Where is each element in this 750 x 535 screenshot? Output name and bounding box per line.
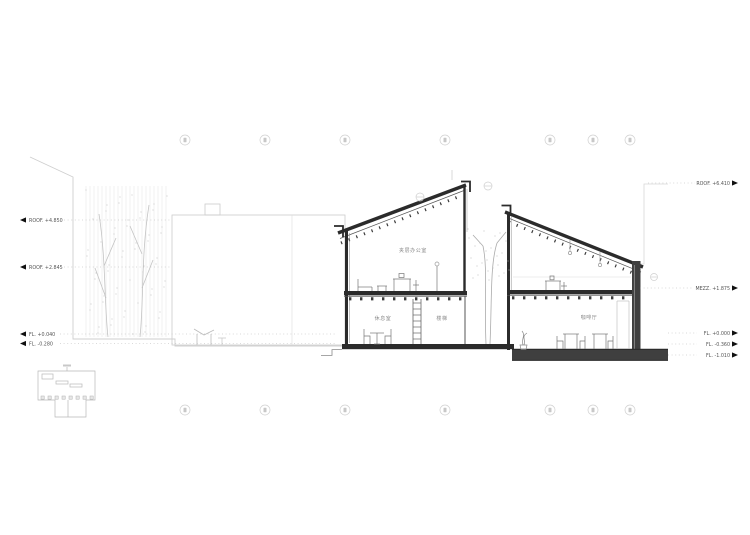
stair-ladder: [413, 299, 421, 344]
background-room: [172, 204, 345, 345]
foliage-dot: [474, 245, 475, 246]
right-roof: [505, 212, 643, 267]
level-marker: MEZZ. +1.875: [640, 285, 738, 291]
foliage-dot: [123, 316, 124, 317]
section-cut: [321, 170, 668, 360]
right-roof-rafters: [509, 222, 639, 276]
section-drawing: 夹层办公室 休息室 楼梯 咖啡厅 ROOF. +4.850 ROOF. +2.8…: [0, 0, 750, 535]
foliage-dot: [108, 264, 109, 265]
foliage-dot: [507, 260, 508, 261]
level-marker: FL. -1.010: [668, 352, 738, 358]
foliage-dot: [496, 255, 497, 256]
foliage-dot: [487, 270, 488, 271]
level-label: ROOF. +4.850: [29, 218, 63, 224]
section-drawing-sheet: 夹层办公室 休息室 楼梯 咖啡厅 ROOF. +4.850 ROOF. +2.8…: [0, 0, 750, 535]
plant-icon: [520, 331, 527, 349]
foliage-dot: [106, 204, 107, 205]
grid-bubble-mark: [592, 408, 595, 413]
key-plan-column: [90, 396, 93, 399]
foliage-dot: [468, 237, 469, 238]
left-roof-rafters: [341, 195, 463, 243]
grid-bubble-icon: [260, 135, 270, 145]
ground-slab-left: [342, 344, 514, 349]
foliage-dot: [467, 228, 468, 229]
foliage-dot: [100, 241, 101, 242]
foliage-dot: [498, 275, 499, 276]
foliage-dot: [151, 288, 152, 289]
key-plan-column: [41, 396, 44, 399]
level-marker: FL. +0.040: [20, 331, 336, 337]
mezz-right-furniture: [545, 276, 567, 290]
foliage-dot: [155, 263, 156, 264]
grid-bubbles: [180, 135, 635, 415]
foliage-dot: [481, 262, 482, 263]
grid-bubble-mark: [592, 138, 595, 143]
foliage-dot: [470, 257, 471, 258]
level-label: FL. +0.000: [704, 331, 730, 337]
level-markers-left: ROOF. +4.850 ROOF. +2.845 FL. +0.040 FL.…: [20, 217, 336, 347]
foliage-dot: [118, 202, 119, 203]
key-plan-column: [62, 396, 65, 399]
foliage-dot: [483, 230, 484, 231]
foliage-dot: [160, 232, 161, 233]
foliage-dot: [485, 250, 486, 251]
foliage-dot: [102, 301, 103, 302]
foliage-dot: [129, 279, 130, 280]
detail-callout-icon: [416, 193, 424, 201]
grid-bubble-mark: [264, 138, 267, 143]
key-plan-column: [76, 396, 79, 399]
foliage-dot: [124, 310, 125, 311]
foliage-dot: [153, 203, 154, 204]
foliage-dot: [119, 196, 120, 197]
foliage-dot: [94, 278, 95, 279]
foliage-dot: [144, 331, 145, 332]
foliage-dot: [472, 277, 473, 278]
site-boundary-line: [30, 157, 342, 346]
room-label-lounge: 休息室: [375, 315, 392, 322]
grid-bubble-icon: [625, 135, 635, 145]
grid-bubble-icon: [180, 405, 190, 415]
foliage-dot: [490, 247, 491, 248]
key-plan-columns: [41, 396, 93, 399]
door-frame: [617, 301, 629, 349]
foliage-dot: [85, 189, 86, 190]
level-marker: ROOF. +2.845: [20, 264, 170, 270]
room-label-cafe: 咖啡厅: [581, 314, 598, 321]
grid-bubble-mark: [344, 408, 347, 413]
neighbor-building-outline: [634, 184, 668, 264]
foliage-dot: [159, 311, 160, 312]
right-wall: [632, 261, 641, 352]
level-label: ROOF. +2.845: [29, 265, 63, 271]
key-plan-title-mark: [63, 365, 71, 367]
foliage-dot: [113, 233, 114, 234]
level-label: ROOF. +6.410: [696, 181, 730, 187]
foliage-dot: [145, 325, 146, 326]
foliage-dot: [107, 270, 108, 271]
grid-bubble-icon: [180, 135, 190, 145]
room-label-stair: 楼梯: [436, 315, 447, 322]
level-label: FL. -0.280: [29, 341, 53, 347]
level-label: FL. -0.360: [706, 342, 730, 348]
foliage-dot: [116, 287, 117, 288]
grid-bubble-icon: [545, 405, 555, 415]
ground-slab-right: [512, 349, 668, 360]
foliage-dot: [497, 264, 498, 265]
monitor-icon: [399, 274, 404, 278]
grid-bubble-icon: [588, 135, 598, 145]
room-label-mezz-office: 夹层办公室: [399, 247, 427, 254]
entry-steps: [321, 350, 342, 356]
grid-bubble-mark: [344, 138, 347, 143]
monitor-icon: [550, 276, 554, 280]
grid-bubble-icon: [625, 405, 635, 415]
foliage-dot: [503, 272, 504, 273]
lounge-furniture: [364, 329, 391, 344]
foliage-dot: [158, 317, 159, 318]
foliage-dot: [87, 249, 88, 250]
detail-callout-icon: [651, 274, 658, 281]
foliage-dot: [488, 279, 489, 280]
left-roof: [338, 185, 466, 233]
foliage-dot: [150, 294, 151, 295]
foliage-dot: [148, 234, 149, 235]
foliage-dot: [115, 293, 116, 294]
key-plan-column: [48, 396, 51, 399]
chimney: [205, 204, 220, 215]
foliage-dot: [126, 225, 127, 226]
grid-bubble-icon: [440, 405, 450, 415]
grid-bubble-mark: [184, 138, 187, 143]
key-plan: [38, 365, 95, 418]
grid-bubble-icon: [260, 405, 270, 415]
grid-bubble-mark: [629, 408, 632, 413]
grid-bubble-icon: [545, 135, 555, 145]
mezz-slab-right: [507, 290, 635, 294]
foliage-dot: [152, 209, 153, 210]
mezz-office-furniture: [358, 262, 439, 291]
foliage-dot: [137, 302, 138, 303]
foliage-dot: [139, 217, 140, 218]
foliage-dot: [140, 211, 141, 212]
level-marker: FL. -0.360: [668, 341, 738, 347]
level-label: FL. +0.040: [29, 332, 55, 338]
foliage-dot: [166, 195, 167, 196]
grid-bubble-icon: [340, 405, 350, 415]
lounge-chair: [194, 329, 214, 345]
mezz-slab-left: [344, 291, 467, 295]
foliage-dot: [90, 303, 91, 304]
foliage-dot: [97, 332, 98, 333]
grid-bubble-mark: [549, 138, 552, 143]
background-context: [30, 157, 668, 346]
level-markers-right: ROOF. +6.410 MEZZ. +1.875 FL. +0.000 FL.…: [640, 180, 738, 358]
key-plan-column: [69, 396, 72, 399]
foliage-dot: [476, 265, 477, 266]
grid-bubble-mark: [629, 138, 632, 143]
foliage-dot: [147, 240, 148, 241]
grid-bubble-mark: [549, 408, 552, 413]
foliage-dot: [164, 280, 165, 281]
cafe-furniture: [520, 240, 613, 349]
detail-callouts: [416, 182, 658, 281]
foliage-dot: [494, 235, 495, 236]
side-table: [218, 338, 226, 345]
level-label: MEZZ. +1.875: [695, 286, 730, 292]
foliage-dot: [122, 250, 123, 251]
foliage-dot: [508, 269, 509, 270]
level-marker: FL. +0.000: [668, 330, 738, 336]
grid-bubble-mark: [444, 138, 447, 143]
level-label: FL. -1.010: [706, 353, 730, 359]
foliage-dot: [86, 255, 87, 256]
courtyard-tree: [473, 232, 506, 344]
foliage-dot: [110, 324, 111, 325]
foliage-dot: [114, 227, 115, 228]
foliage-dot: [163, 286, 164, 287]
detail-callout-icon: [484, 182, 492, 190]
foliage-dot: [486, 259, 487, 260]
foliage-dot: [92, 218, 93, 219]
tree-screen-slats: [86, 186, 166, 337]
foliage-dot: [131, 194, 132, 195]
key-plan-column: [55, 396, 58, 399]
foliage-dot: [492, 267, 493, 268]
grid-bubble-mark: [444, 408, 447, 413]
foliage-dot: [161, 226, 162, 227]
foliage-dot: [479, 242, 480, 243]
grid-bubble-icon: [340, 135, 350, 145]
foliage-dot: [121, 256, 122, 257]
foliage-dot: [98, 326, 99, 327]
foliage-dot: [501, 252, 502, 253]
foliage-dot: [105, 210, 106, 211]
foliage-dot: [135, 242, 136, 243]
key-plan-column: [83, 396, 86, 399]
foliage-dot: [89, 309, 90, 310]
grid-bubble-icon: [588, 405, 598, 415]
foliage-dot: [505, 240, 506, 241]
grid-bubble-mark: [184, 408, 187, 413]
foliage-dot: [127, 219, 128, 220]
foliage-dot: [103, 295, 104, 296]
grid-bubble-icon: [440, 135, 450, 145]
foliage-dot: [156, 257, 157, 258]
foliage-dot: [111, 318, 112, 319]
grid-bubble-mark: [264, 408, 267, 413]
foliage-dot: [134, 248, 135, 249]
foliage-dot: [477, 274, 478, 275]
foliage-dot: [499, 232, 500, 233]
